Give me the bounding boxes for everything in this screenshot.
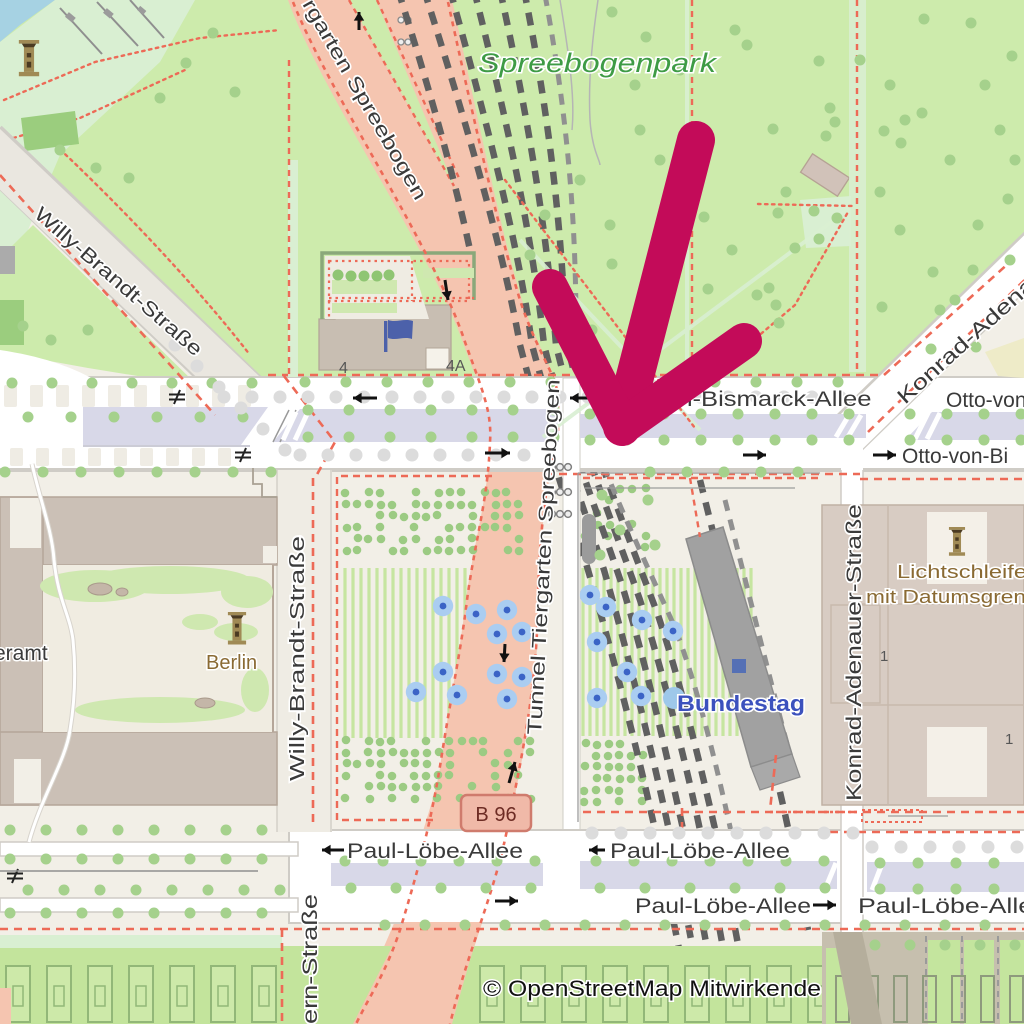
svg-text:mit Datumsgren: mit Datumsgren <box>866 587 1024 607</box>
svg-text:1: 1 <box>880 648 888 665</box>
svg-text:eramt: eramt <box>0 642 48 665</box>
svg-text:Paul-Löbe-Allee: Paul-Löbe-Allee <box>610 840 790 863</box>
svg-text:4: 4 <box>339 360 348 377</box>
svg-text:Paul-Löbe-Allee: Paul-Löbe-Allee <box>347 840 523 863</box>
svg-text:Willy-Brandt-Straße: Willy-Brandt-Straße <box>287 536 309 781</box>
svg-text:Berlin: Berlin <box>206 652 257 674</box>
svg-text:Konrad-Adenauer-Straße: Konrad-Adenauer-Straße <box>843 504 866 801</box>
svg-text:B 96: B 96 <box>475 804 516 826</box>
svg-text:4A: 4A <box>446 358 466 375</box>
svg-text:Paul-Löbe-Allee: Paul-Löbe-Allee <box>858 895 1024 918</box>
svg-text:Bundestag: Bundestag <box>677 691 805 716</box>
svg-text:Otto-von-Bi: Otto-von-Bi <box>946 389 1024 412</box>
svg-text:Otto-von-Bi: Otto-von-Bi <box>902 445 1008 468</box>
svg-text:Paul-Löbe-Allee: Paul-Löbe-Allee <box>635 895 811 918</box>
svg-text:1: 1 <box>1005 731 1013 748</box>
svg-text:Spreebogenpark: Spreebogenpark <box>478 48 718 78</box>
svg-text:© OpenStreetMap Mitwirkende: © OpenStreetMap Mitwirkende <box>483 976 821 1001</box>
svg-text:Lichtschleife: Lichtschleife <box>897 562 1024 582</box>
svg-text:ern-Straße: ern-Straße <box>299 894 322 1024</box>
